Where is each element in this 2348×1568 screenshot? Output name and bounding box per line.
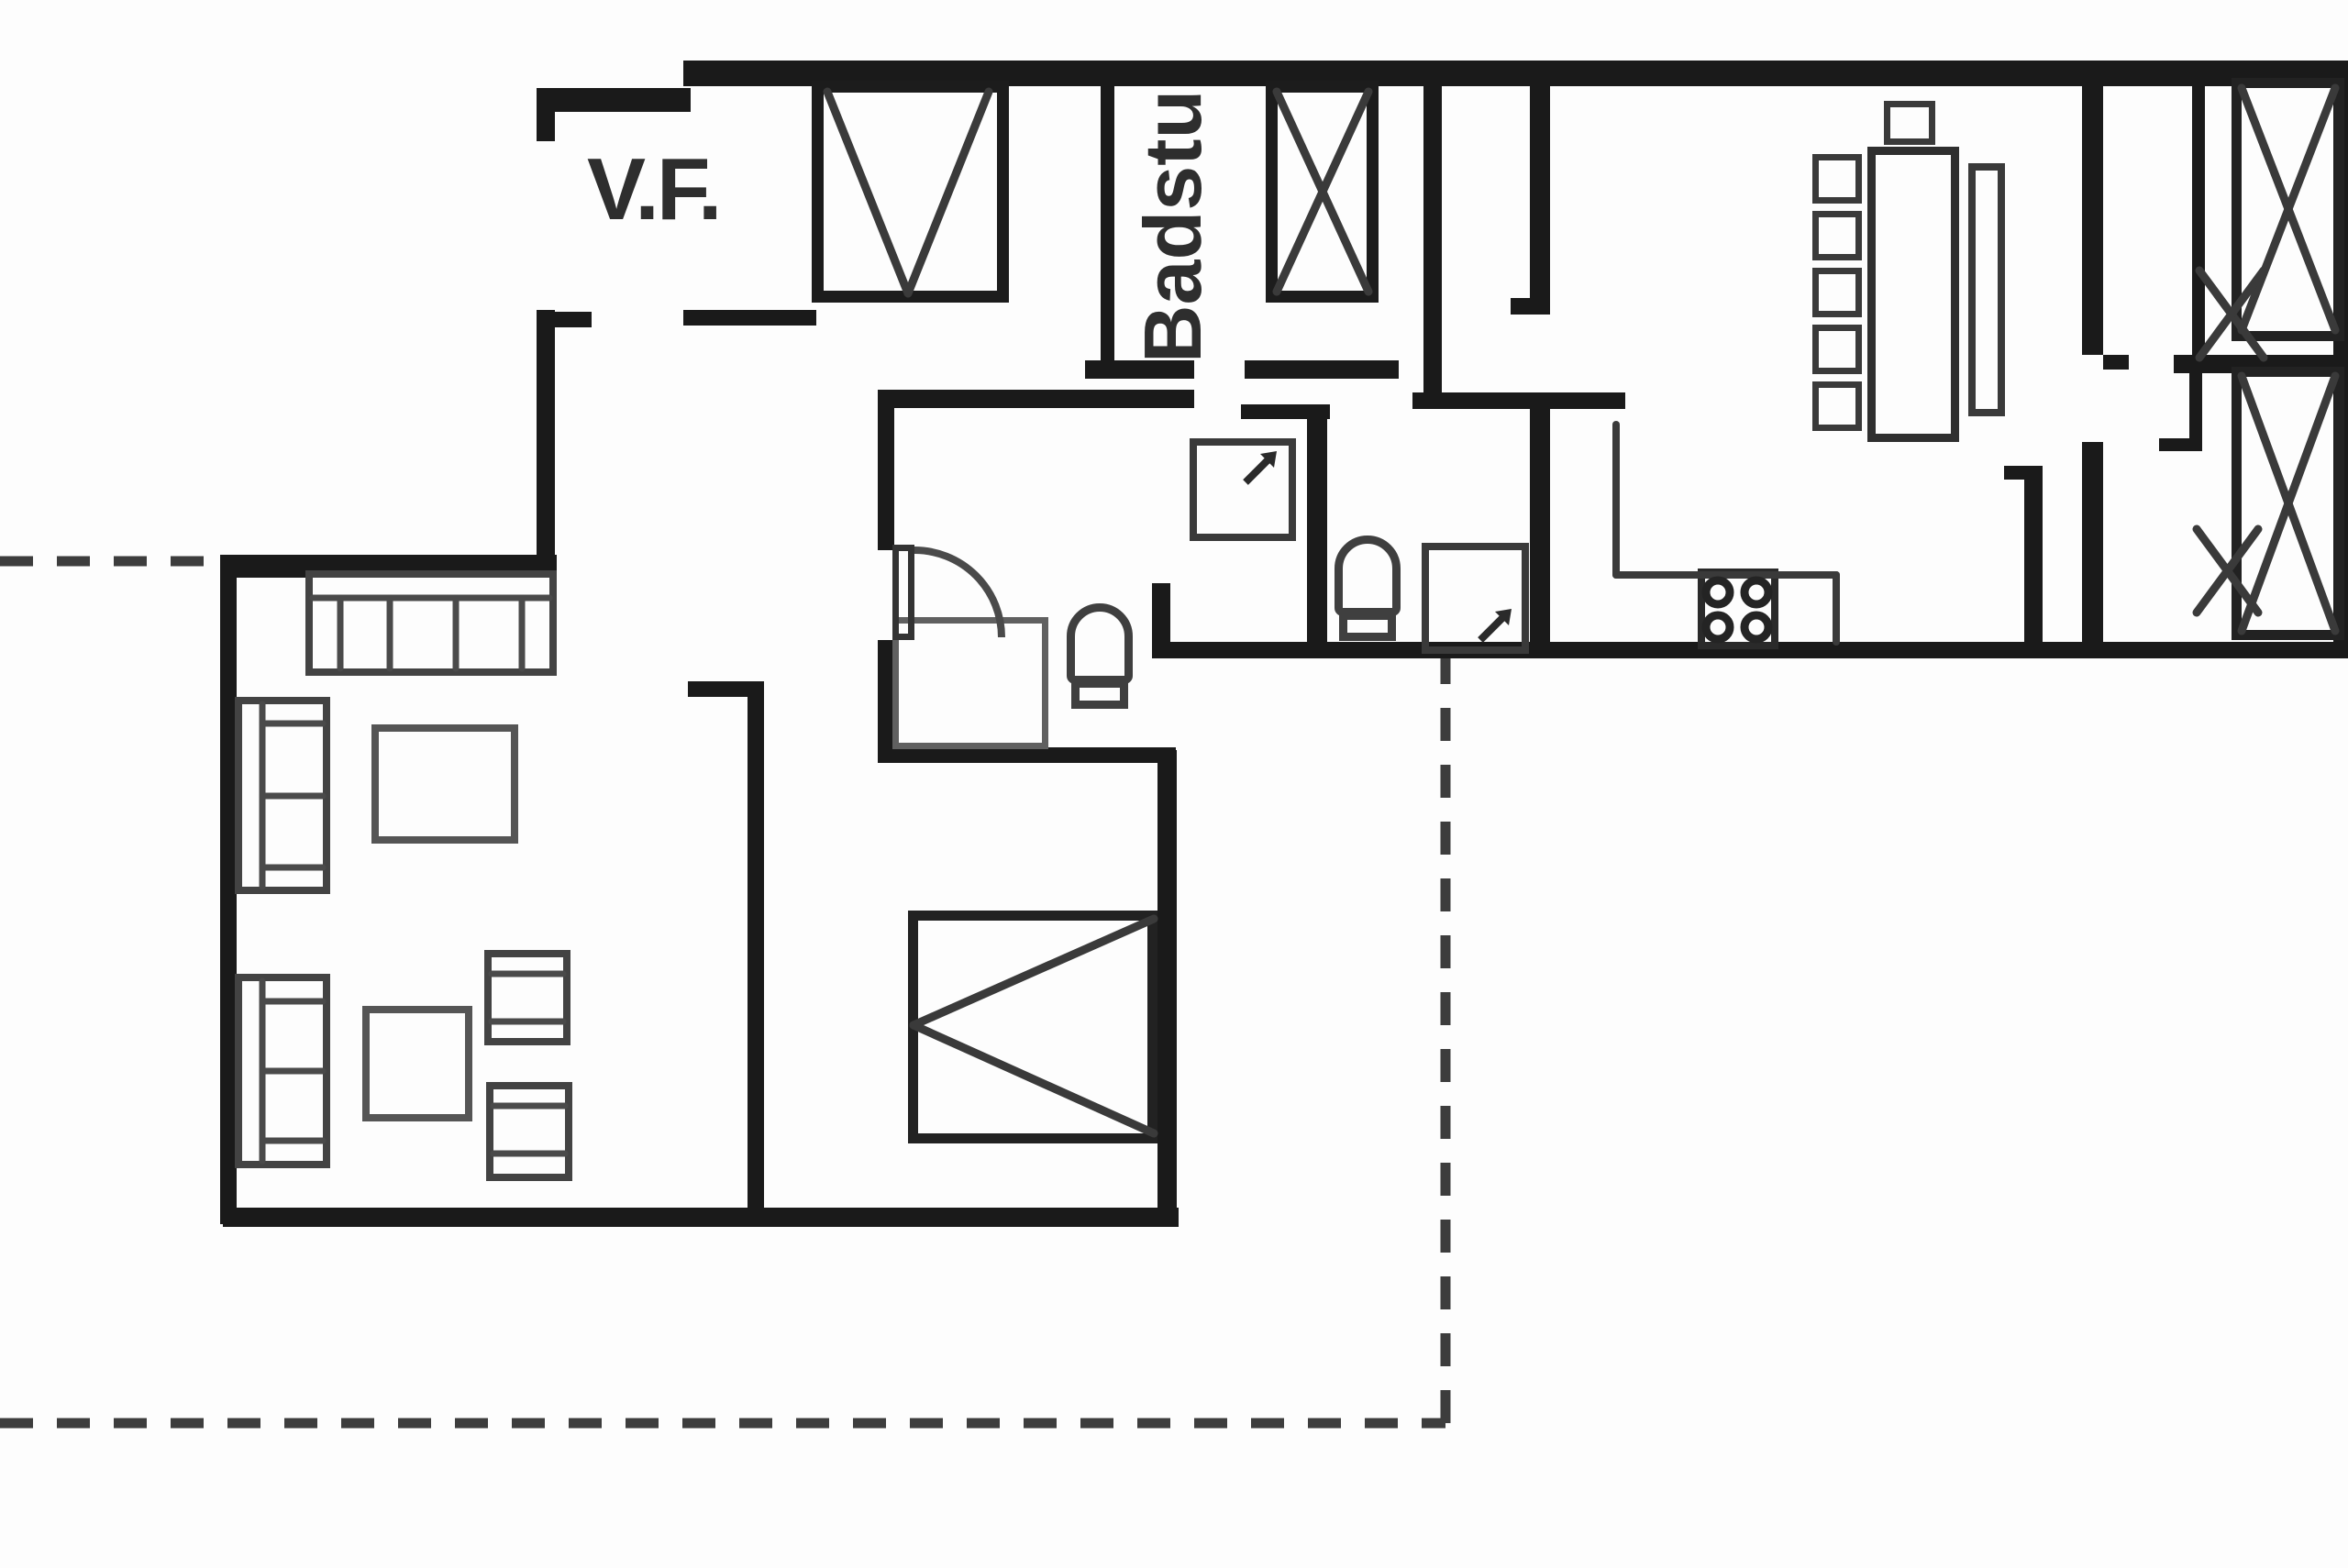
floor-plan: V.F. Badstu <box>0 0 2348 1568</box>
plan-linework <box>0 0 2348 1568</box>
